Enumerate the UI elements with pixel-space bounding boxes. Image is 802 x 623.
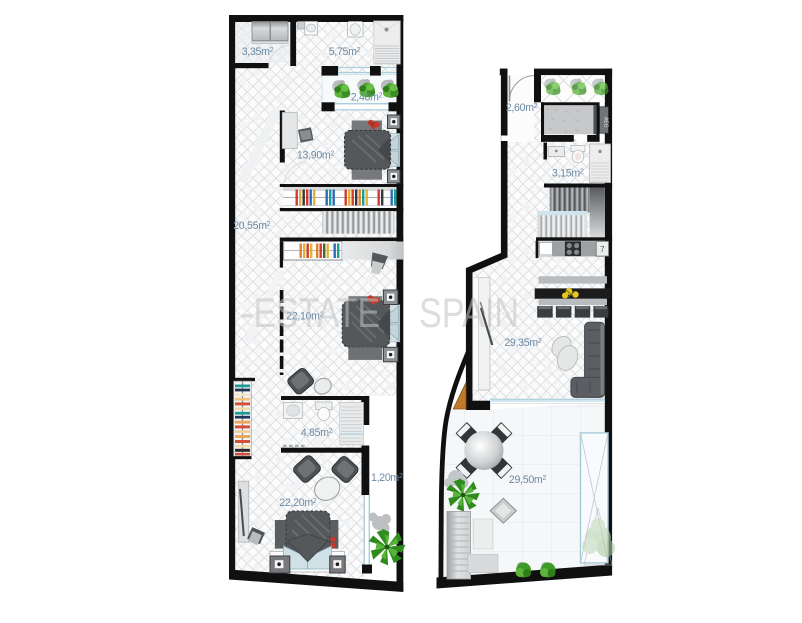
svg-text:AEG: AEG — [602, 117, 608, 128]
svg-text:3,35m2: 3,35m2 — [242, 46, 274, 58]
svg-text:4,85m2: 4,85m2 — [301, 427, 333, 439]
svg-text:29,35m2: 29,35m2 — [504, 337, 542, 349]
svg-text:1,20m2: 1,20m2 — [371, 472, 403, 484]
svg-text:2,40m2: 2,40m2 — [351, 92, 383, 104]
svg-text:5,75m2: 5,75m2 — [329, 46, 361, 58]
svg-text:2,60m2: 2,60m2 — [506, 102, 538, 114]
svg-text:20,55m2: 20,55m2 — [233, 220, 271, 232]
svg-text:29,50m2: 29,50m2 — [509, 474, 547, 486]
svg-text:13,90m2: 13,90m2 — [297, 150, 335, 162]
svg-text:7: 7 — [600, 245, 605, 254]
svg-text:SPAIN: SPAIN — [419, 289, 519, 336]
svg-text:3,15m2: 3,15m2 — [552, 168, 584, 180]
svg-text:22,20m2: 22,20m2 — [279, 497, 317, 509]
svg-text:-: - — [240, 289, 254, 336]
svg-text:ESTATE: ESTATE — [254, 289, 381, 336]
